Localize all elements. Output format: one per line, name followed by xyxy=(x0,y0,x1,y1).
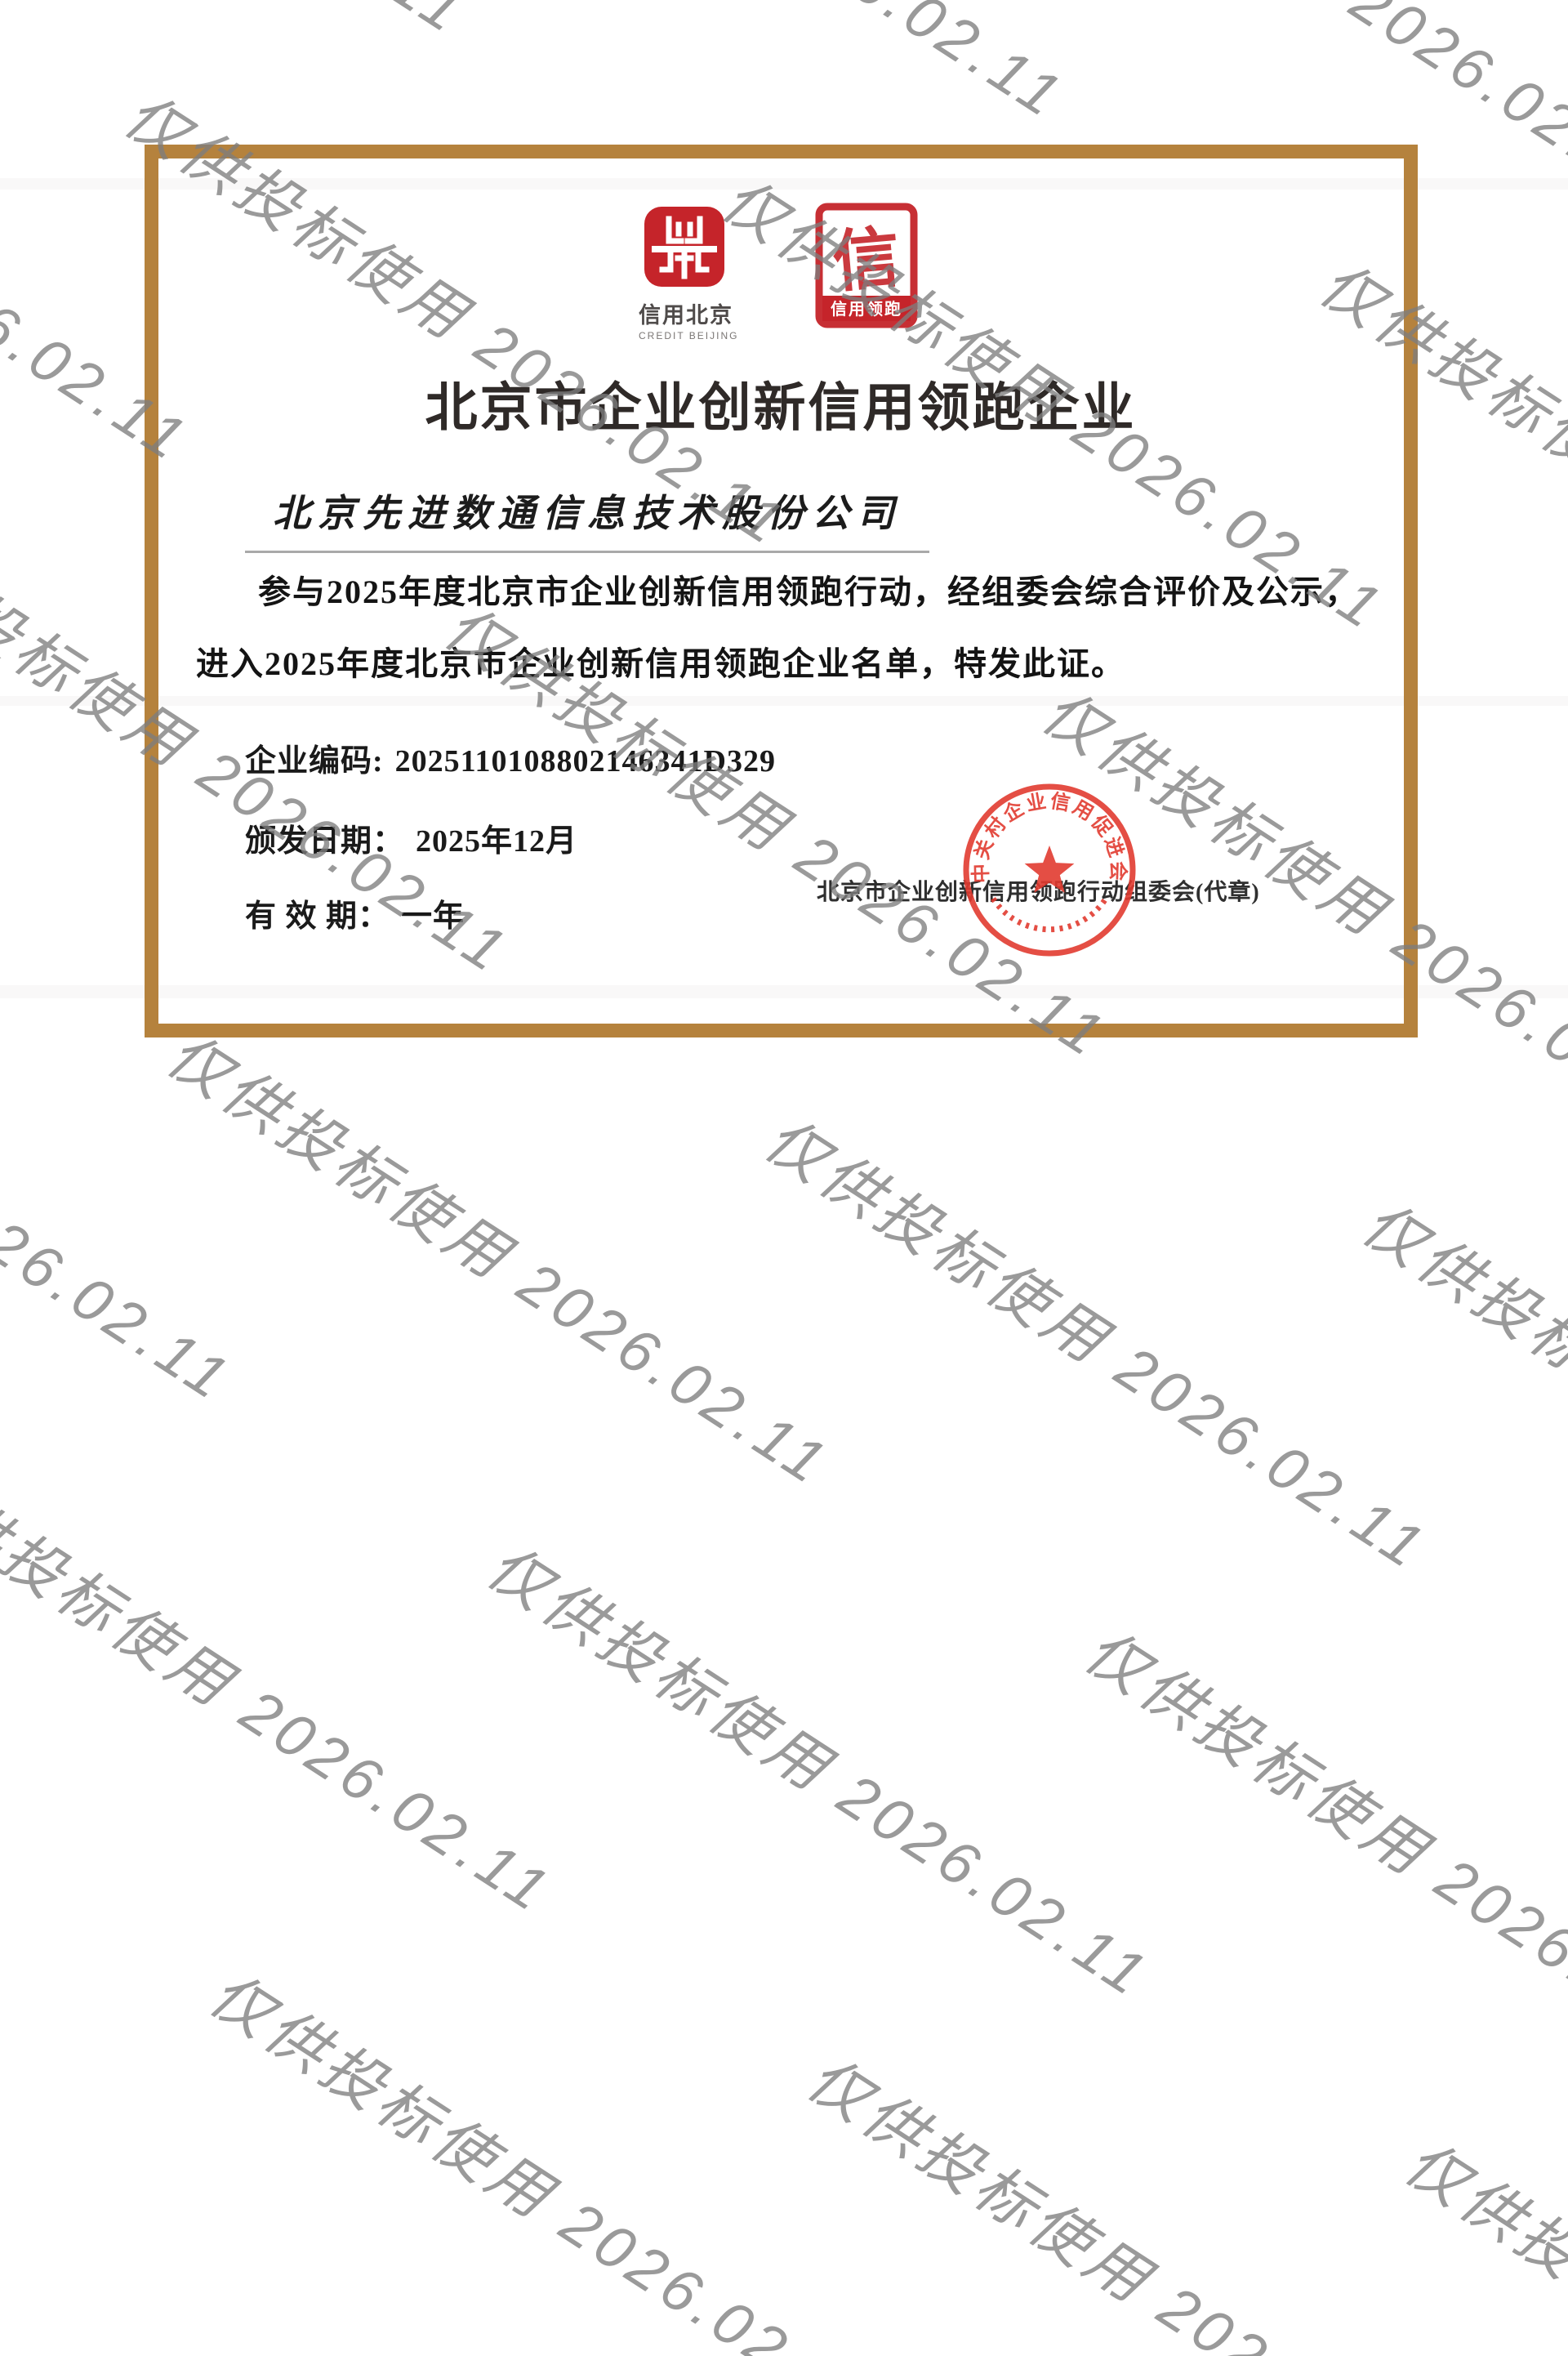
credit-beijing-label-en: CREDIT BEIJING xyxy=(639,330,730,341)
field-label: 企业编码: xyxy=(245,744,384,779)
field-value: 一年 xyxy=(401,899,465,934)
watermark-text: 仅供投标使用 2026.02.11 xyxy=(0,1435,572,1930)
watermark-text: 仅供投标使用 2026.02.11 xyxy=(1347,1176,1568,1671)
watermark-text: 仅供投标使用 2026.02.11 xyxy=(153,1007,850,1502)
watermark-text: 仅供投标使用 2026.02.11 xyxy=(473,1519,1170,2015)
watermark-text: 仅供投标使用 2026.02.11 xyxy=(1071,1604,1568,2099)
company-name: 北京先进数通信息技术股份公司 xyxy=(273,491,902,535)
credit-leading-stamp-icon: 信 信用领跑 xyxy=(815,203,918,332)
field-value: 2025110108802146341D329 xyxy=(395,744,776,779)
certificate-scan-page: { "watermark": { "text": "仅供投标使用 2026.02… xyxy=(0,0,1568,1178)
watermark-text: 仅供投标使用 2026.02.11 xyxy=(793,2032,1490,2356)
watermark-text: 仅供投标使用 2026.02.11 xyxy=(0,0,487,51)
body-text-line: 进入2025年度北京市企业创新信用领跑企业名单，特发此证。 xyxy=(196,637,1125,685)
official-red-seal: 中关村企业信用促进会 xyxy=(955,776,1143,968)
watermark-text: 仅供投标使用 2026.02.11 xyxy=(1391,2116,1568,2356)
watermark-text: 仅供投标使用 2026.02.11 xyxy=(751,1092,1448,1587)
field-label: 有 效 期： xyxy=(245,899,390,934)
seal-serial-marks xyxy=(993,899,1106,930)
field-issue-date: 颁发日期：2025年12月 xyxy=(245,815,577,860)
field-validity: 有 效 期：一年 xyxy=(245,890,465,935)
watermark-text: 仅供投标使用 2026.02.11 xyxy=(195,1947,893,2356)
seal-star-icon xyxy=(1025,846,1075,893)
credit-beijing-emblem-icon xyxy=(644,206,725,288)
field-label: 颁发日期： xyxy=(245,824,404,859)
credit-leading-stamp-svg: 信 信用领跑 xyxy=(815,203,918,328)
body-text-line: 参与2025年度北京市企业创新信用领跑行动，经组委会综合评价及公示， xyxy=(258,565,1359,613)
certificate-title: 北京市企业创新信用领跑企业 xyxy=(425,366,1137,441)
credit-beijing-label-cn: 信用北京 xyxy=(639,297,730,329)
watermark-text: 仅供投标使用 2026.02.11 xyxy=(387,0,1085,136)
credit-beijing-logo: 信用北京 CREDIT BEIJING xyxy=(639,206,730,341)
company-name-underline: 北京先进数通信息技术股份公司 xyxy=(245,484,929,553)
red-seal-svg: 中关村企业信用促进会 xyxy=(955,776,1143,964)
field-enterprise-code: 企业编码:2025110108802146341D329 xyxy=(245,735,776,780)
credit-leading-glyph: 信 xyxy=(830,218,903,302)
credit-leading-band-label: 信用领跑 xyxy=(831,299,902,319)
field-value: 2025年12月 xyxy=(416,824,577,859)
